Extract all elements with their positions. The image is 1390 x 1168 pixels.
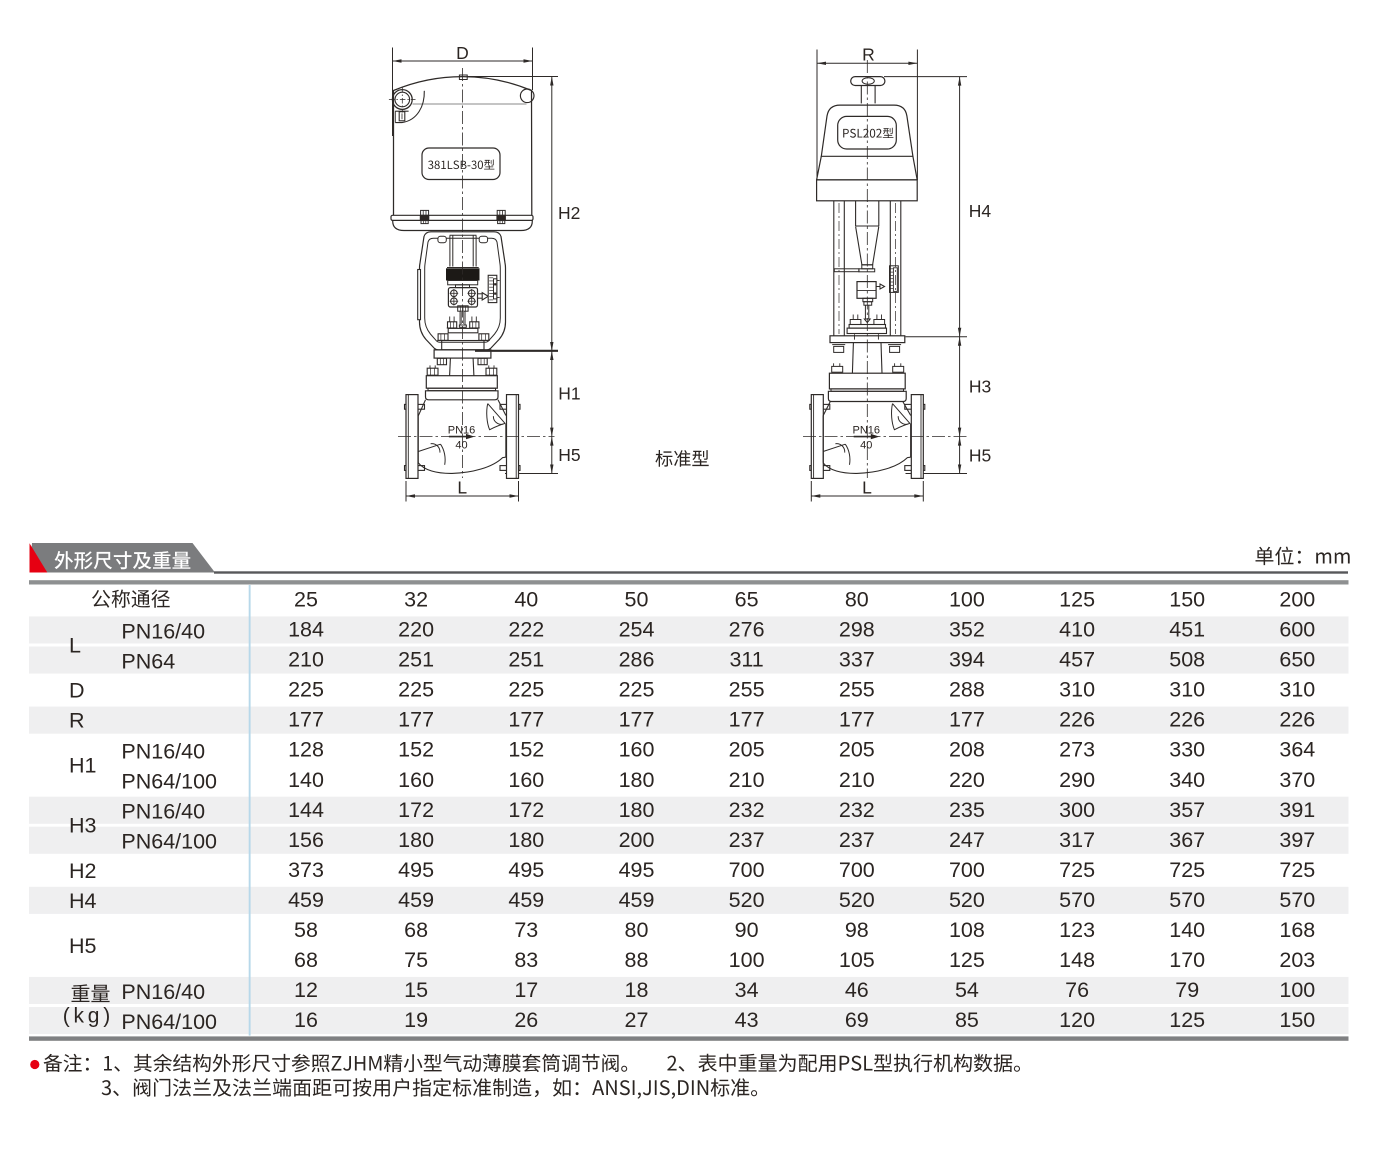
svg-text:16: 16	[294, 1008, 318, 1032]
svg-text:337: 337	[839, 648, 875, 672]
svg-text:520: 520	[949, 888, 985, 912]
svg-text:PN64/100: PN64/100	[121, 770, 217, 794]
svg-text:310: 310	[1169, 678, 1205, 702]
svg-text:459: 459	[508, 888, 544, 912]
svg-text:H3: H3	[969, 377, 991, 397]
svg-text:128: 128	[288, 738, 324, 762]
svg-text:352: 352	[949, 618, 985, 642]
svg-text:286: 286	[619, 648, 655, 672]
svg-text:357: 357	[1169, 798, 1205, 822]
svg-text:200: 200	[619, 828, 655, 852]
svg-text:600: 600	[1279, 618, 1315, 642]
svg-text:247: 247	[949, 828, 985, 852]
svg-text:170: 170	[1169, 948, 1205, 972]
svg-text:495: 495	[619, 858, 655, 882]
svg-text:177: 177	[288, 708, 324, 732]
svg-text:L: L	[69, 634, 81, 658]
svg-text:25: 25	[294, 588, 318, 612]
svg-text:508: 508	[1169, 648, 1205, 672]
svg-text:225: 225	[508, 678, 544, 702]
svg-text:177: 177	[398, 708, 434, 732]
svg-text:226: 226	[1059, 708, 1095, 732]
svg-text:75: 75	[404, 948, 428, 972]
svg-text:123: 123	[1059, 918, 1095, 942]
svg-text:88: 88	[625, 948, 649, 972]
svg-text:D: D	[456, 43, 469, 63]
svg-text:H4: H4	[69, 889, 97, 913]
svg-text:PN16/40: PN16/40	[121, 740, 205, 764]
svg-text:65: 65	[735, 588, 759, 612]
svg-text:PN64/100: PN64/100	[121, 830, 217, 854]
svg-text:168: 168	[1279, 918, 1315, 942]
svg-text:H5: H5	[69, 934, 97, 958]
svg-text:80: 80	[845, 588, 869, 612]
svg-text:251: 251	[398, 648, 434, 672]
svg-text:451: 451	[1169, 618, 1205, 642]
svg-text:PN16: PN16	[853, 424, 881, 436]
svg-text:PN16/40: PN16/40	[121, 980, 205, 1004]
svg-text:54: 54	[955, 978, 979, 1002]
svg-text:200: 200	[1279, 588, 1315, 612]
svg-text:27: 27	[625, 1008, 649, 1032]
svg-text:700: 700	[839, 858, 875, 882]
svg-text:148: 148	[1059, 948, 1095, 972]
svg-text:237: 237	[839, 828, 875, 852]
svg-text:310: 310	[1279, 678, 1315, 702]
svg-text:73: 73	[514, 918, 538, 942]
svg-text:156: 156	[288, 828, 324, 852]
svg-text:184: 184	[288, 618, 324, 642]
svg-text:PN16: PN16	[448, 424, 476, 436]
svg-text:203: 203	[1279, 948, 1315, 972]
svg-text:394: 394	[949, 648, 985, 672]
svg-text:255: 255	[839, 678, 875, 702]
svg-text:79: 79	[1175, 978, 1199, 1002]
svg-text:570: 570	[1279, 888, 1315, 912]
svg-text:(kg): (kg)	[63, 1004, 114, 1027]
svg-text:32: 32	[404, 588, 428, 612]
svg-text:L: L	[862, 477, 872, 497]
svg-text:90: 90	[735, 918, 759, 942]
svg-text:40: 40	[514, 588, 538, 612]
svg-text:459: 459	[288, 888, 324, 912]
svg-text:232: 232	[729, 798, 765, 822]
svg-text:700: 700	[949, 858, 985, 882]
svg-text:46: 46	[845, 978, 869, 1002]
svg-text:317: 317	[1059, 828, 1095, 852]
svg-text:370: 370	[1279, 768, 1315, 792]
svg-text:235: 235	[949, 798, 985, 822]
svg-text:34: 34	[735, 978, 759, 1002]
svg-text:152: 152	[508, 738, 544, 762]
svg-text:226: 226	[1169, 708, 1205, 732]
svg-text:80: 80	[625, 918, 649, 942]
svg-text:725: 725	[1279, 858, 1315, 882]
svg-text:364: 364	[1279, 738, 1315, 762]
svg-text:83: 83	[514, 948, 538, 972]
svg-text:205: 205	[729, 738, 765, 762]
svg-text:H1: H1	[558, 384, 580, 404]
svg-text:17: 17	[514, 978, 538, 1002]
svg-text:210: 210	[839, 768, 875, 792]
svg-text:180: 180	[619, 798, 655, 822]
svg-text:85: 85	[955, 1008, 979, 1032]
svg-text:177: 177	[619, 708, 655, 732]
svg-text:459: 459	[619, 888, 655, 912]
svg-text:26: 26	[514, 1008, 538, 1032]
svg-text:210: 210	[729, 768, 765, 792]
svg-text:PN64/100: PN64/100	[121, 1010, 217, 1034]
svg-text:152: 152	[398, 738, 434, 762]
svg-text:373: 373	[288, 858, 324, 882]
svg-text:298: 298	[839, 618, 875, 642]
svg-text:725: 725	[1169, 858, 1205, 882]
svg-text:R: R	[862, 44, 875, 64]
svg-text:15: 15	[404, 978, 428, 1002]
svg-text:520: 520	[839, 888, 875, 912]
svg-text:700: 700	[729, 858, 765, 882]
svg-text:140: 140	[1169, 918, 1205, 942]
svg-text:H2: H2	[69, 859, 96, 883]
svg-text:273: 273	[1059, 738, 1095, 762]
svg-text:725: 725	[1059, 858, 1095, 882]
svg-text:237: 237	[729, 828, 765, 852]
svg-text:367: 367	[1169, 828, 1205, 852]
svg-text:69: 69	[845, 1008, 869, 1032]
svg-text:172: 172	[398, 798, 434, 822]
svg-text:D: D	[69, 679, 85, 703]
svg-text:PN64: PN64	[121, 649, 175, 673]
svg-text:108: 108	[949, 918, 985, 942]
svg-text:226: 226	[1279, 708, 1315, 732]
svg-text:650: 650	[1279, 648, 1315, 672]
svg-text:150: 150	[1169, 588, 1205, 612]
svg-text:180: 180	[619, 768, 655, 792]
svg-text:288: 288	[949, 678, 985, 702]
svg-text:311: 311	[729, 648, 763, 672]
svg-text:255: 255	[729, 678, 765, 702]
svg-text:68: 68	[294, 948, 318, 972]
svg-text:459: 459	[398, 888, 434, 912]
svg-text:125: 125	[1059, 588, 1095, 612]
svg-text:310: 310	[1059, 678, 1095, 702]
svg-text:150: 150	[1279, 1008, 1315, 1032]
svg-text:160: 160	[508, 768, 544, 792]
svg-text:43: 43	[735, 1008, 759, 1032]
svg-text:144: 144	[288, 798, 324, 822]
svg-text:205: 205	[839, 738, 875, 762]
svg-text:PN16/40: PN16/40	[121, 619, 205, 643]
svg-text:180: 180	[398, 828, 434, 852]
svg-text:225: 225	[288, 678, 324, 702]
svg-text:100: 100	[949, 588, 985, 612]
svg-text:391: 391	[1279, 798, 1315, 822]
svg-text:58: 58	[294, 918, 318, 942]
svg-text:40: 40	[455, 440, 467, 452]
svg-text:H1: H1	[69, 754, 96, 778]
svg-text:100: 100	[1279, 978, 1315, 1002]
svg-text:160: 160	[398, 768, 434, 792]
svg-text:232: 232	[839, 798, 875, 822]
svg-text:208: 208	[949, 738, 985, 762]
svg-text:225: 225	[398, 678, 434, 702]
svg-text:180: 180	[508, 828, 544, 852]
svg-text:H4: H4	[969, 201, 992, 221]
svg-text:R: R	[69, 709, 85, 733]
svg-text:68: 68	[404, 918, 428, 942]
svg-text:222: 222	[508, 618, 544, 642]
svg-text:98: 98	[845, 918, 869, 942]
svg-text:397: 397	[1279, 828, 1315, 852]
svg-text:290: 290	[1059, 768, 1095, 792]
svg-text:210: 210	[288, 648, 324, 672]
svg-text:105: 105	[839, 948, 875, 972]
svg-text:140: 140	[288, 768, 324, 792]
svg-text:220: 220	[949, 768, 985, 792]
svg-text:160: 160	[619, 738, 655, 762]
svg-text:570: 570	[1059, 888, 1095, 912]
svg-text:251: 251	[508, 648, 544, 672]
svg-text:18: 18	[625, 978, 649, 1002]
svg-text:PN16/40: PN16/40	[121, 800, 205, 824]
svg-text:172: 172	[508, 798, 544, 822]
svg-text:410: 410	[1059, 618, 1095, 642]
svg-text:120: 120	[1059, 1008, 1095, 1032]
svg-text:12: 12	[294, 978, 318, 1002]
svg-text:H3: H3	[69, 814, 97, 838]
svg-text:40: 40	[860, 440, 872, 452]
svg-text:276: 276	[729, 618, 765, 642]
svg-text:570: 570	[1169, 888, 1205, 912]
svg-text:330: 330	[1169, 738, 1205, 762]
svg-text:H5: H5	[558, 445, 580, 465]
svg-text:177: 177	[949, 708, 985, 732]
svg-text:177: 177	[839, 708, 875, 732]
svg-text:19: 19	[404, 1008, 428, 1032]
svg-text:520: 520	[729, 888, 765, 912]
svg-text:457: 457	[1059, 648, 1095, 672]
svg-text:177: 177	[508, 708, 544, 732]
svg-text:300: 300	[1059, 798, 1095, 822]
svg-text:100: 100	[729, 948, 765, 972]
svg-text:225: 225	[619, 678, 655, 702]
svg-text:125: 125	[1169, 1008, 1205, 1032]
svg-text:340: 340	[1169, 768, 1205, 792]
svg-text:H2: H2	[558, 203, 580, 223]
svg-text:L: L	[457, 477, 467, 497]
svg-text:495: 495	[398, 858, 434, 882]
svg-text:76: 76	[1065, 978, 1089, 1002]
svg-text:50: 50	[625, 588, 649, 612]
svg-text:254: 254	[619, 618, 655, 642]
svg-text:495: 495	[508, 858, 544, 882]
svg-text:220: 220	[398, 618, 434, 642]
svg-text:177: 177	[729, 708, 765, 732]
svg-text:H5: H5	[969, 445, 991, 465]
svg-text:125: 125	[949, 948, 985, 972]
